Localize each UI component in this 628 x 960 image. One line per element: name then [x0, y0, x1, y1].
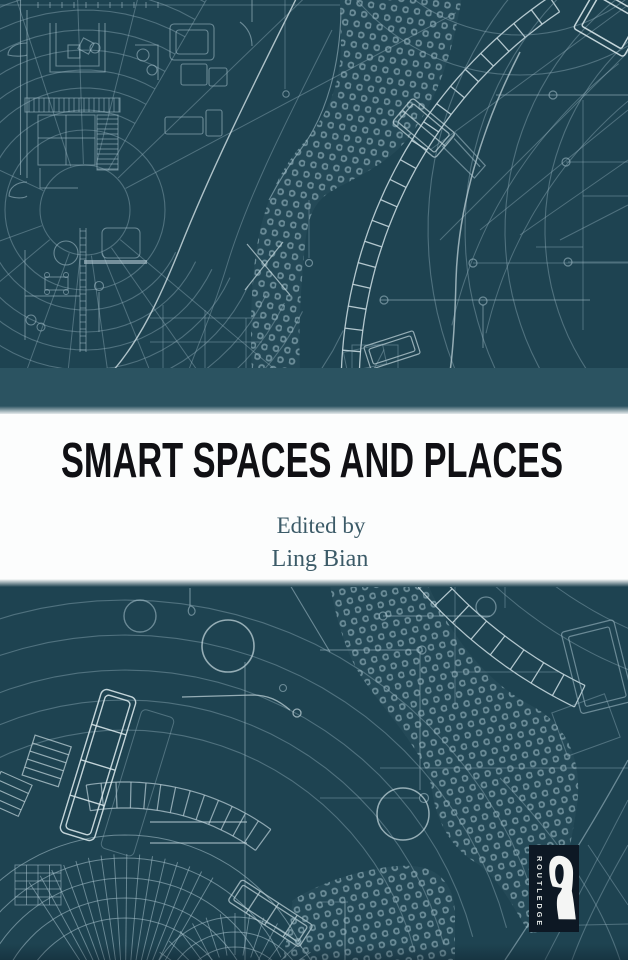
svg-text:Ling Bian: Ling Bian [272, 546, 369, 572]
svg-text:ROUTLEDGE: ROUTLEDGE [535, 856, 544, 928]
svg-text:Edited by: Edited by [277, 513, 366, 538]
svg-text:SMART SPACES AND PLACES: SMART SPACES AND PLACES [61, 433, 563, 488]
